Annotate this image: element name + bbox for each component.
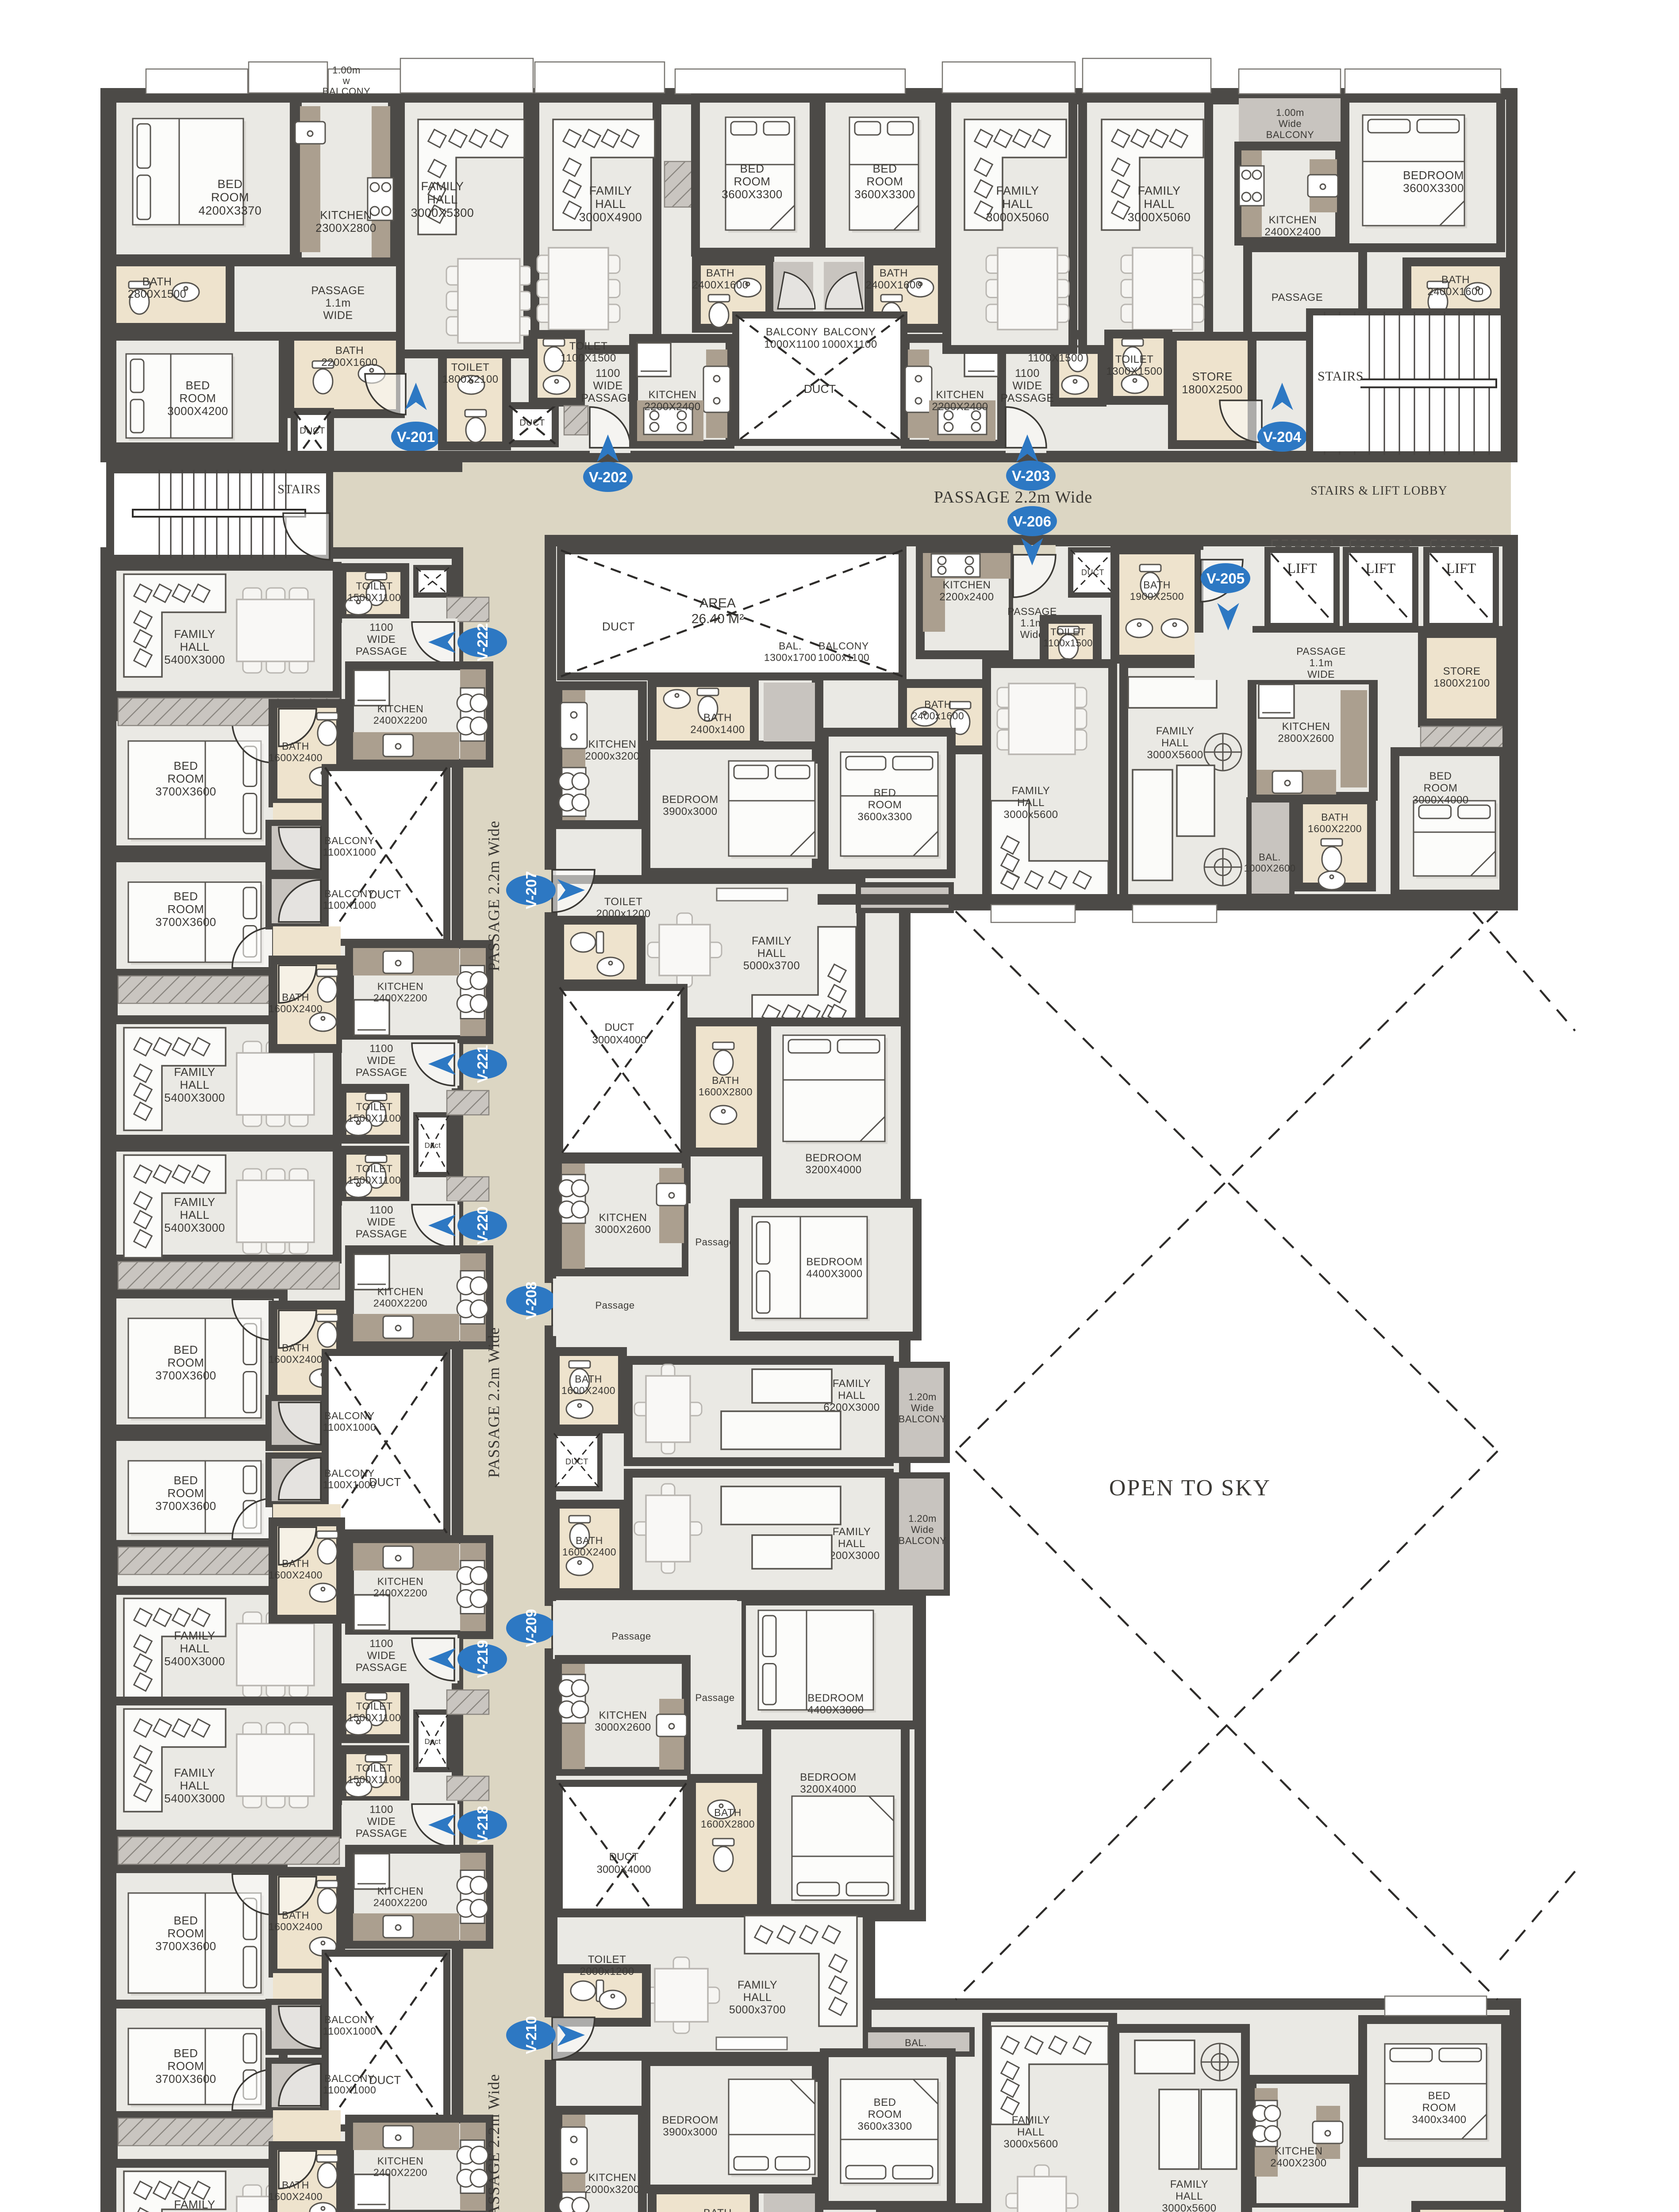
svg-text:V-207: V-207	[523, 871, 539, 909]
svg-text:KITCHEN2300X2800: KITCHEN2300X2800	[315, 208, 377, 234]
svg-text:PASSAGE 2.2m Wide: PASSAGE 2.2m Wide	[485, 821, 503, 972]
svg-text:LIFT: LIFT	[1366, 560, 1396, 576]
svg-text:TOILET2000x1200: TOILET2000x1200	[580, 1954, 634, 1978]
svg-text:BALCONY1000X1100: BALCONY1000X1100	[764, 326, 820, 350]
svg-text:PASSAGE: PASSAGE	[1272, 292, 1323, 303]
svg-text:KITCHEN2800X2600: KITCHEN2800X2600	[1278, 721, 1334, 745]
svg-text:KITCHEN2000x3200: KITCHEN2000x3200	[585, 2172, 639, 2196]
svg-text:KITCHEN2400X2200: KITCHEN2400X2200	[373, 1886, 427, 1909]
svg-text:BALCONY1100X1000: BALCONY1100X1000	[323, 1410, 376, 1433]
svg-text:V-202: V-202	[589, 469, 627, 485]
svg-text:LIFT: LIFT	[1446, 560, 1476, 576]
svg-text:BALCONY1000x1100: BALCONY1000x1100	[818, 640, 870, 663]
svg-text:BEDROOM3900x3000: BEDROOM3900x3000	[662, 2114, 718, 2138]
svg-text:DUCT: DUCT	[300, 426, 325, 436]
svg-text:V-210: V-210	[523, 2016, 539, 2054]
svg-text:V-203: V-203	[1012, 468, 1050, 484]
svg-text:DUCT: DUCT	[519, 418, 545, 428]
svg-text:BEDROOM3200X4000: BEDROOM3200X4000	[805, 1152, 862, 1176]
svg-text:BALCONY1000X1100: BALCONY1000X1100	[822, 326, 877, 350]
svg-text:STAIRS: STAIRS	[1318, 369, 1364, 384]
svg-text:DUCT: DUCT	[1081, 568, 1104, 577]
svg-text:BEDROOM4400X3000: BEDROOM4400X3000	[806, 1256, 863, 1280]
svg-text:Passage: Passage	[611, 1631, 651, 1642]
svg-text:BALCONY1100X1000: BALCONY1100X1000	[323, 2014, 376, 2037]
svg-text:KITCHEN2400X2300: KITCHEN2400X2300	[1270, 2145, 1326, 2169]
svg-text:STAIRS & LIFT LOBBY: STAIRS & LIFT LOBBY	[1310, 484, 1448, 498]
svg-text:KITCHEN2400X2200: KITCHEN2400X2200	[373, 703, 427, 726]
svg-text:V-218: V-218	[474, 1806, 491, 1844]
svg-text:V-201: V-201	[397, 429, 435, 445]
svg-text:TOILET2000x1200: TOILET2000x1200	[596, 896, 650, 920]
svg-text:BALCONY1100X1000: BALCONY1100X1000	[323, 835, 376, 858]
svg-text:V-219: V-219	[474, 1640, 491, 1678]
svg-text:Duct: Duct	[425, 1141, 441, 1150]
svg-text:KITCHEN3000X2600: KITCHEN3000X2600	[595, 1212, 651, 1236]
svg-text:DUCT: DUCT	[565, 1457, 588, 1466]
svg-text:KITCHEN2200x2400: KITCHEN2200x2400	[939, 579, 994, 603]
svg-text:KITCHEN2000x3200: KITCHEN2000x3200	[585, 738, 639, 762]
svg-text:KITCHEN3000X2600: KITCHEN3000X2600	[595, 1709, 651, 1733]
svg-text:KITCHEN2400X2400: KITCHEN2400X2400	[1264, 214, 1321, 238]
svg-text:BALCONY1100X1000: BALCONY1100X1000	[323, 1467, 376, 1490]
svg-text:PASSAGE 2.2m Wide: PASSAGE 2.2m Wide	[934, 488, 1093, 507]
svg-text:Passage: Passage	[695, 1237, 734, 1248]
svg-text:V-221: V-221	[474, 1045, 491, 1083]
svg-text:Passage: Passage	[595, 1300, 634, 1311]
svg-text:PASSAGE 2.2m Wide: PASSAGE 2.2m Wide	[485, 2074, 503, 2212]
svg-text:Passage: Passage	[695, 1692, 734, 1703]
svg-text:V-204: V-204	[1263, 429, 1302, 445]
svg-text:V-206: V-206	[1013, 513, 1051, 530]
svg-text:BALCONY1100X1000: BALCONY1100X1000	[323, 888, 376, 911]
svg-text:BEDROOM3200X4000: BEDROOM3200X4000	[800, 1771, 857, 1795]
svg-text:V-205: V-205	[1206, 570, 1245, 587]
svg-text:V-220: V-220	[474, 1206, 491, 1244]
svg-text:DUCT: DUCT	[804, 382, 836, 396]
svg-text:Duct: Duct	[425, 1737, 441, 1746]
svg-text:BEDROOM3900x3000: BEDROOM3900x3000	[662, 794, 718, 818]
svg-text:V-208: V-208	[523, 1282, 539, 1320]
svg-text:KITCHEN2400X2200: KITCHEN2400X2200	[373, 981, 427, 1004]
svg-text:DUCT: DUCT	[602, 620, 635, 633]
svg-text:PASSAGE 2.2m Wide: PASSAGE 2.2m Wide	[485, 1327, 503, 1478]
svg-text:BEDROOM3600X3300: BEDROOM3600X3300	[1403, 169, 1464, 195]
svg-text:LIFT: LIFT	[1287, 560, 1317, 576]
svg-text:KITCHEN2400X2200: KITCHEN2400X2200	[373, 1286, 427, 1309]
svg-text:V-222: V-222	[474, 623, 491, 661]
svg-text:TOILET1100x1500: TOILET1100x1500	[1043, 626, 1093, 649]
svg-text:KITCHEN2200X2400: KITCHEN2200X2400	[932, 389, 988, 413]
svg-text:KITCHEN2400X2200: KITCHEN2400X2200	[373, 2155, 427, 2178]
svg-text:BALCONY1100X1000: BALCONY1100X1000	[323, 2073, 376, 2096]
svg-text:OPEN TO SKY: OPEN TO SKY	[1109, 1475, 1271, 1501]
svg-text:KITCHEN2400X2200: KITCHEN2400X2200	[373, 1576, 427, 1599]
svg-text:BEDROOM4400X3000: BEDROOM4400X3000	[807, 1692, 864, 1716]
svg-text:KITCHEN2200X2400: KITCHEN2200X2400	[644, 389, 700, 413]
svg-text:BAL.: BAL.	[905, 2037, 927, 2048]
svg-text:V-209: V-209	[523, 1609, 539, 1647]
svg-text:STAIRS: STAIRS	[277, 483, 320, 496]
